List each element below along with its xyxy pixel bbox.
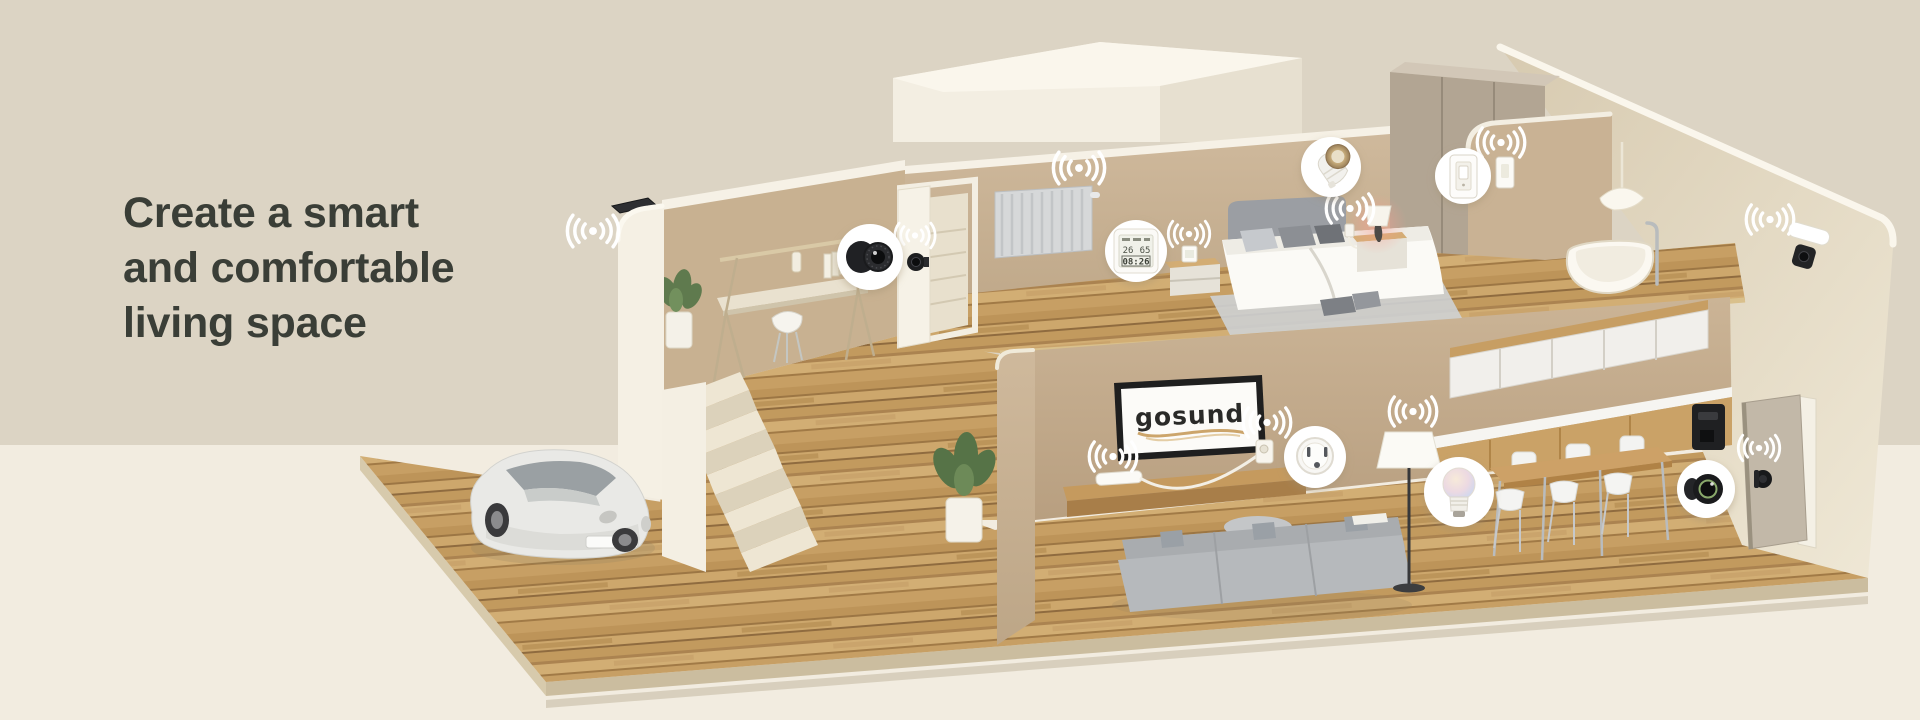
temperature-humidity-sensor-icon: 26 65 08:26	[1114, 229, 1158, 273]
callout-gu10-bulb[interactable]	[1301, 137, 1361, 197]
radiator	[995, 186, 1100, 258]
stair-side-wall	[662, 382, 706, 572]
front-door	[1742, 395, 1816, 549]
wall-outlet	[1256, 440, 1273, 463]
nightstand-left	[1165, 258, 1220, 296]
callout-indoor-camera[interactable]	[837, 224, 903, 290]
smart-home-illustration: gosund	[0, 0, 1920, 720]
hallway-door	[898, 180, 975, 348]
sensor-time: 08:26	[1122, 258, 1149, 268]
headline-line-1: Create a smart	[123, 186, 455, 241]
tv-brand-logo: gosund	[1134, 399, 1245, 433]
security-camera-icon	[846, 241, 892, 273]
smart-light-switch-icon	[1450, 155, 1477, 198]
coffee-machine	[1692, 404, 1725, 450]
sensor-temperature: 26	[1123, 246, 1134, 256]
headline: Create a smart and comfortable living sp…	[123, 186, 455, 351]
callout-smart-plug[interactable]	[1284, 426, 1346, 488]
hero-banner: gosund	[0, 0, 1920, 720]
sensor-humidity: 65	[1140, 246, 1151, 256]
living-partition-wall	[997, 350, 1035, 645]
headline-line-2: and comfortable	[123, 241, 455, 296]
callout-smart-switch[interactable]	[1435, 148, 1491, 204]
temperature-humidity-sensor-device	[1182, 246, 1197, 262]
smart-plug-icon	[1297, 438, 1333, 474]
callout-mini-camera[interactable]	[1677, 460, 1735, 518]
headline-line-3: living space	[123, 296, 455, 351]
left-exterior-wall	[618, 206, 664, 500]
wall-switch	[1496, 157, 1514, 188]
smart-door-lock-icon	[1754, 470, 1772, 488]
callout-smart-bulb[interactable]	[1424, 457, 1494, 527]
mini-camera-icon	[1684, 474, 1723, 504]
callout-temperature-sensor[interactable]: 26 65 08:26	[1105, 220, 1167, 282]
